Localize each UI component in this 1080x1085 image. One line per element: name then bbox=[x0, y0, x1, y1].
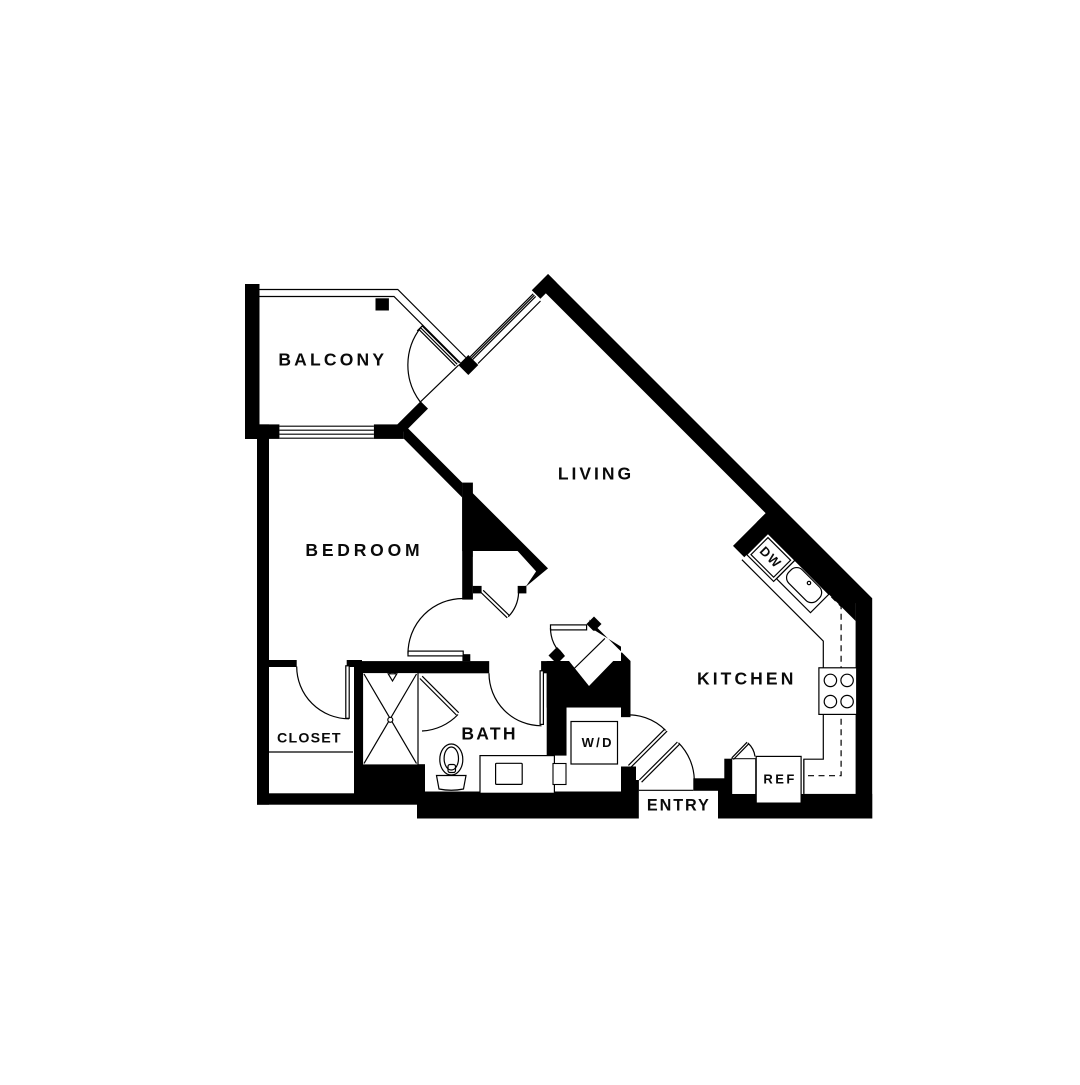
svg-text:BATH: BATH bbox=[461, 724, 518, 744]
svg-text:ENTRY: ENTRY bbox=[647, 797, 711, 815]
svg-text:BALCONY: BALCONY bbox=[278, 349, 387, 369]
svg-text:W/D: W/D bbox=[582, 735, 614, 750]
svg-text:REF: REF bbox=[763, 772, 797, 787]
svg-text:LIVING: LIVING bbox=[558, 464, 634, 484]
svg-text:KITCHEN: KITCHEN bbox=[697, 669, 796, 689]
svg-text:CLOSET: CLOSET bbox=[277, 731, 342, 747]
svg-text:BEDROOM: BEDROOM bbox=[305, 540, 423, 560]
